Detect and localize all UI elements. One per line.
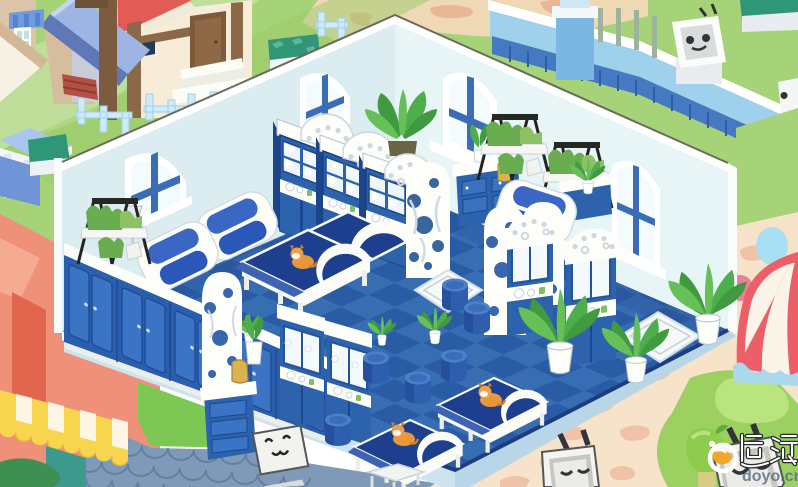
- svg-text:doyo.cn: doyo.cn: [742, 468, 798, 485]
